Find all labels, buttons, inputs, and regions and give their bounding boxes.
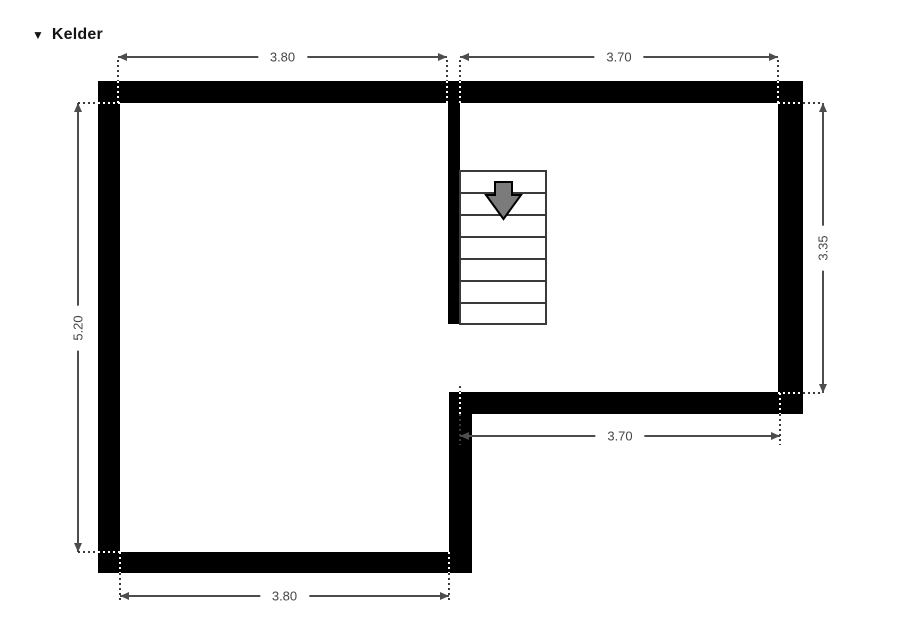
extension-line [98,102,120,104]
extension-line [777,60,779,81]
extension-line [459,81,461,103]
extension-line [803,392,822,394]
extension-line [98,551,120,553]
dimension-inner-bottom: 3.70 [460,435,780,437]
extension-line [777,81,779,103]
dim-arrow-up-icon [819,103,827,112]
extension-line [78,102,98,104]
collapse-triangle-icon: ▼ [32,29,44,41]
extension-line [119,573,121,600]
dim-arrow-left-icon [460,53,469,61]
dimension-label: 3.35 [816,225,831,270]
extension-line [78,551,98,553]
dim-arrow-left-icon [120,592,129,600]
dimension-bottom: 3.80 [120,595,449,597]
extension-line [446,60,448,81]
dimension-top-right: 3.70 [460,56,778,58]
dim-arrow-left-icon [460,432,469,440]
floor-title: Kelder [52,26,103,44]
floor-section-header[interactable]: ▼ Kelder [32,26,103,44]
extension-line [446,81,448,103]
dimension-label: 3.80 [258,50,307,65]
extension-line [459,392,461,414]
extension-line [803,102,822,104]
dim-arrow-up-icon [74,103,82,112]
wall-left [98,81,120,573]
dimension-left: 5.20 [77,103,79,552]
extension-line [459,60,461,81]
extension-line [448,552,450,573]
extension-line [779,414,781,445]
wall-top [98,81,803,103]
dimension-label: 3.80 [260,589,309,604]
stairs-down-arrow-icon [481,176,526,222]
dimension-right: 3.35 [822,103,824,393]
dimension-top-left: 3.80 [118,56,447,58]
extension-line [779,393,781,414]
extension-line [117,60,119,81]
stair-tread-line [461,280,545,282]
dimension-label: 3.70 [595,429,644,444]
extension-line [119,552,121,573]
extension-line [778,102,803,104]
dim-arrow-left-icon [118,53,127,61]
dimension-label: 5.20 [71,305,86,350]
extension-line [778,392,803,394]
wall-bottom [98,552,472,573]
extension-line [448,573,450,600]
wall-right [778,81,803,414]
stair-tread-line [461,258,545,260]
stair-tread-line [461,236,545,238]
extension-line [459,414,461,445]
dimension-label: 3.70 [594,50,643,65]
floorplan-canvas: ▼ Kelder 3.80 3.70 5.20 3.35 [0,0,900,635]
stair-tread-line [461,302,545,304]
wall-middle-horizontal [449,392,803,414]
extension-line [117,81,119,103]
